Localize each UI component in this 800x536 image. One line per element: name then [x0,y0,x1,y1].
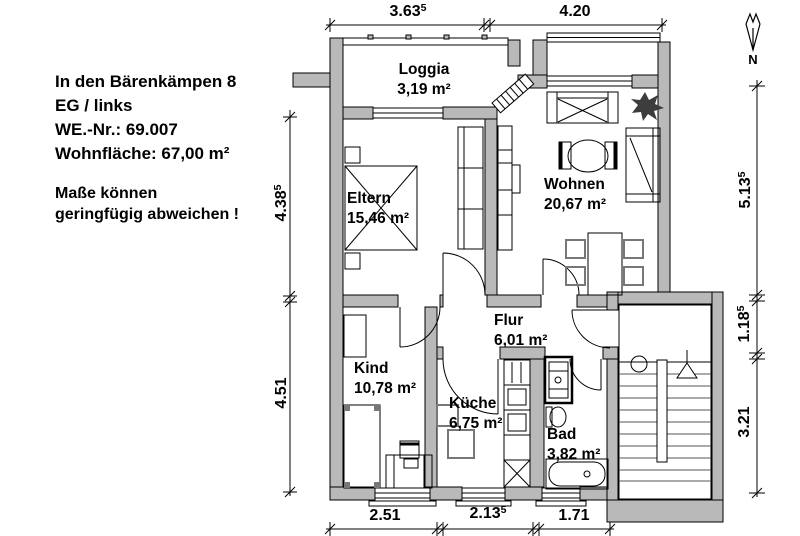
address-line: In den Bärenkämpen 8 [55,72,236,92]
disclaimer-line-1: Maße können [55,185,157,203]
sofa-top [547,92,618,123]
nightstand [345,147,360,163]
toilet [546,407,566,427]
dim-top-1: 3.635 [368,3,448,21]
dim-left-2: 4.51 [273,363,291,423]
furniture-bad [545,357,608,489]
dim-right-3: 3.21 [736,392,754,452]
living-area: Wohnfläche: 67,00 m² [55,144,229,164]
stair-column [631,356,647,372]
dim-right-1: 5.135 [737,160,755,220]
entry-door [572,310,610,348]
dim-bottom-1: 2.51 [345,507,425,525]
bad-door [570,359,601,390]
dimension-ticks [285,20,762,534]
sofa-right [626,128,660,202]
wohnen-door [543,259,579,295]
dim-right-2: 1.185 [736,294,754,354]
stairwell [619,305,711,499]
stair-divider [657,360,667,462]
furniture-kind [344,315,432,488]
round-table [559,140,617,172]
dim-top-2: 4.20 [535,3,615,21]
disclaimer-line-2: geringfügig abweichen ! [55,206,239,224]
room-label-kueche: Küche6,75 m² [449,394,502,434]
shelf-unit [498,126,520,250]
room-label-loggia: Loggia3,19 m² [364,60,484,100]
bed [344,405,380,488]
nightstand [345,253,360,269]
room-label-eltern: Eltern15,46 m² [347,189,409,229]
unit-number: WE.-Nr.: 69.007 [55,120,178,140]
dim-left-1: 4.385 [273,173,291,233]
wardrobe [458,127,483,249]
kitchen-table [448,430,474,458]
room-label-kind: Kind10,78 m² [354,359,416,399]
washbasin-niche [545,357,572,403]
dining-set [566,233,643,295]
floor-line: EG / links [55,96,132,116]
eltern-door [443,253,485,295]
room-label-wohnen: Wohnen20,67 m² [544,175,606,215]
north-arrow-icon: N [746,14,760,67]
north-label: N [748,52,757,67]
room-label-flur: Flur6,01 m² [494,311,547,351]
room-label-bad: Bad3,82 m² [547,425,600,465]
floorplan-page: N In den Bärenkämpen 8 EG / links WE.-Nr… [0,0,800,536]
balcony-door [492,74,534,113]
dim-bottom-2: 2.135 [448,505,528,523]
stair-up-arrow [677,350,697,378]
kitchen-counter [504,360,530,487]
wardrobe [344,315,366,357]
dim-bottom-3: 1.71 [534,507,614,525]
